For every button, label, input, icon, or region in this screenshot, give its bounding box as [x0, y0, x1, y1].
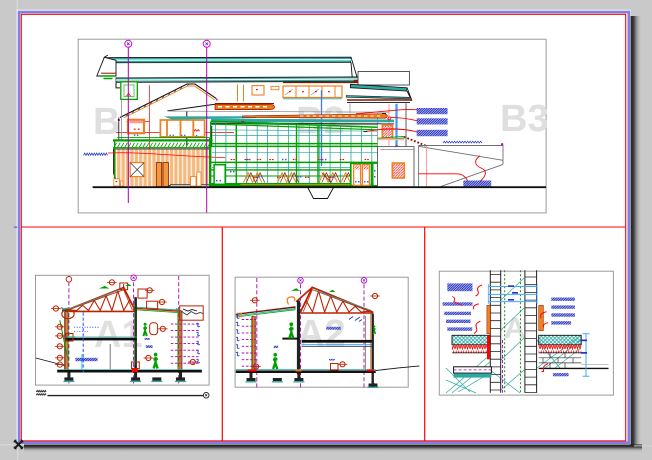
- svg-text:A2: A2: [297, 313, 346, 355]
- svg-text:B: B: [93, 101, 120, 143]
- svg-text:B3: B3: [500, 98, 549, 140]
